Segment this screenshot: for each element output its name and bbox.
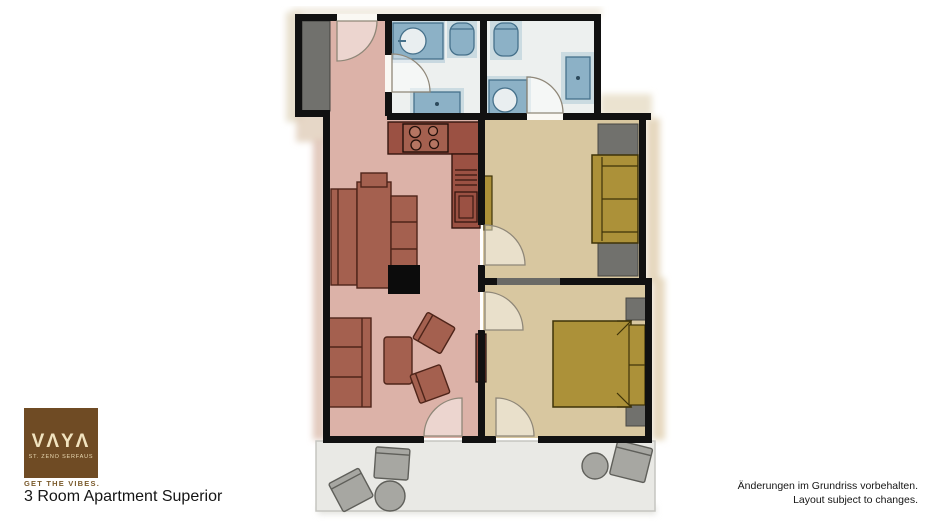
page-title: 3 Room Apartment Superior	[24, 488, 222, 506]
dining-bench	[331, 189, 357, 285]
vaya-logo-tagline: GET THE VIBES.	[24, 479, 100, 488]
bench-cushions	[391, 196, 417, 276]
floor-plan	[280, 6, 672, 522]
toilet	[450, 23, 474, 55]
terrace-chair	[609, 440, 652, 483]
nightstand	[626, 298, 646, 320]
sink-basin	[493, 88, 517, 112]
sofa	[327, 318, 371, 407]
hall-wardrobe	[302, 21, 330, 111]
vaya-logo-subtitle: ST. ZENO SERFAUS	[29, 454, 94, 460]
vaya-logo-wordmark: VΛYΛ	[32, 432, 91, 451]
double-bed	[553, 321, 631, 407]
tv-board	[484, 176, 492, 230]
page: { "logo": { "brand": "VAYA", "display": …	[0, 0, 940, 529]
bench-cushion	[361, 173, 387, 187]
disclaimer: Änderungen im Grundriss vorbehalten. Lay…	[738, 480, 918, 507]
disclaimer-line-en: Layout subject to changes.	[738, 494, 918, 508]
terrace-table	[582, 453, 608, 479]
toilet	[494, 23, 518, 56]
stove	[403, 124, 448, 152]
coffee-table	[384, 337, 412, 384]
vaya-logo: VΛYΛ ST. ZENO SERFAUS	[24, 408, 98, 478]
disclaimer-line-de: Änderungen im Grundriss vorbehalten.	[738, 480, 918, 494]
terrace-table	[375, 481, 405, 511]
fireplace	[388, 265, 420, 294]
terrace-chair	[374, 447, 410, 480]
dining-bench	[357, 182, 391, 288]
